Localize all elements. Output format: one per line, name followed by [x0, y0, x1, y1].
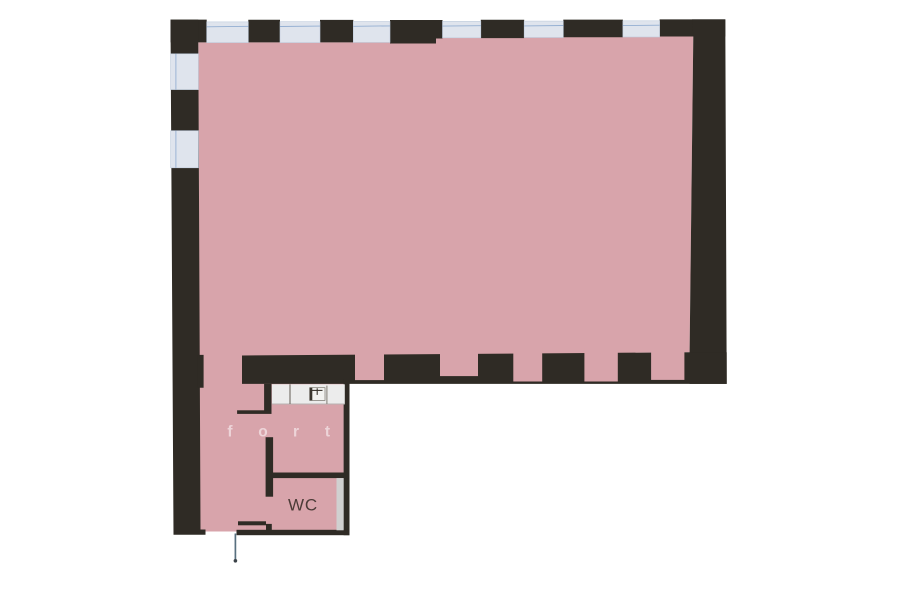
svg-text:t: t: [325, 423, 330, 440]
svg-text:r: r: [293, 423, 299, 440]
svg-text:WC: WC: [288, 496, 318, 515]
svg-text:f: f: [227, 423, 233, 440]
svg-text:o: o: [258, 423, 267, 440]
